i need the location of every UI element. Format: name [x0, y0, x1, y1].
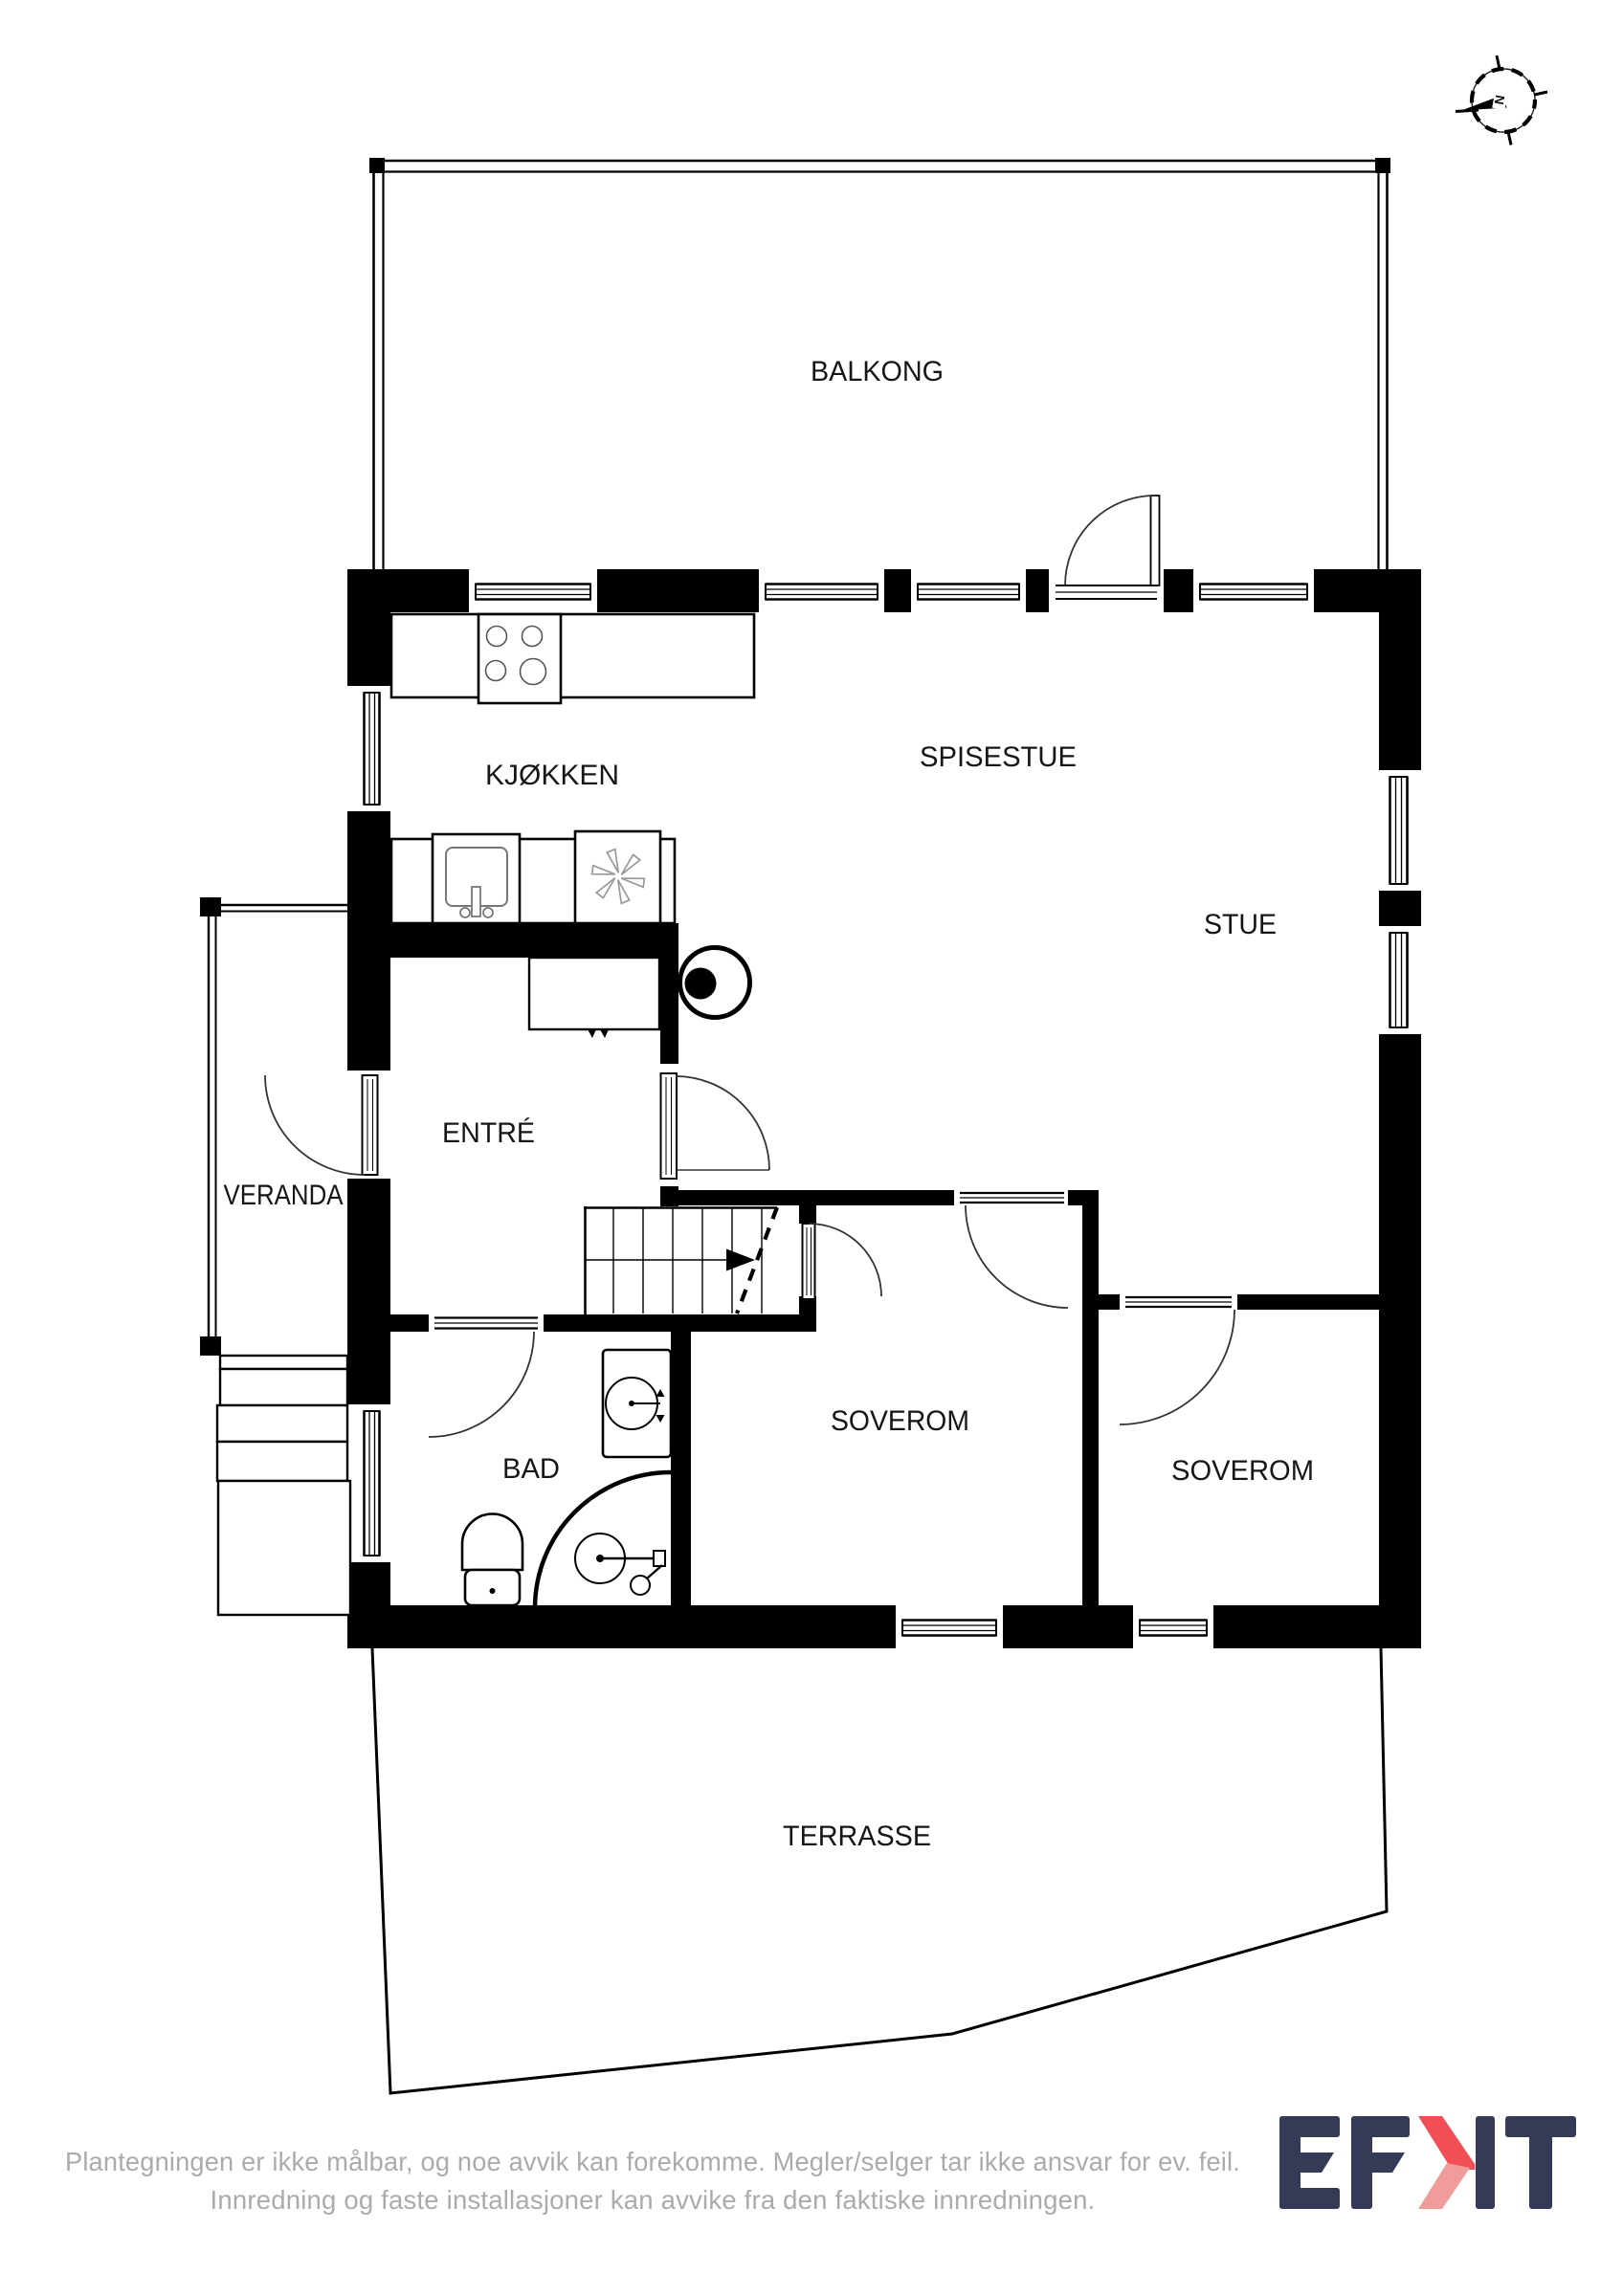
svg-text:ENTRÉ: ENTRÉ	[442, 1117, 535, 1149]
svg-text:SPISESTUE: SPISESTUE	[920, 741, 1077, 773]
svg-text:Plantegningen er ikke målbar,: Plantegningen er ikke målbar, og noe avv…	[65, 2147, 1240, 2176]
svg-text:BAD: BAD	[502, 1453, 560, 1485]
svg-text:SOVEROM: SOVEROM	[831, 1405, 969, 1437]
svg-text:STUE: STUE	[1204, 909, 1277, 940]
svg-text:TERRASSE: TERRASSE	[783, 1821, 931, 1852]
svg-text:KJØKKEN: KJØKKEN	[485, 760, 619, 791]
svg-text:BALKONG: BALKONG	[811, 356, 944, 387]
svg-text:Innredning og faste installasj: Innredning og faste installasjoner kan a…	[211, 2185, 1096, 2215]
svg-text:VERANDA: VERANDA	[224, 1180, 344, 1211]
svg-text:SOVEROM: SOVEROM	[1171, 1455, 1314, 1487]
